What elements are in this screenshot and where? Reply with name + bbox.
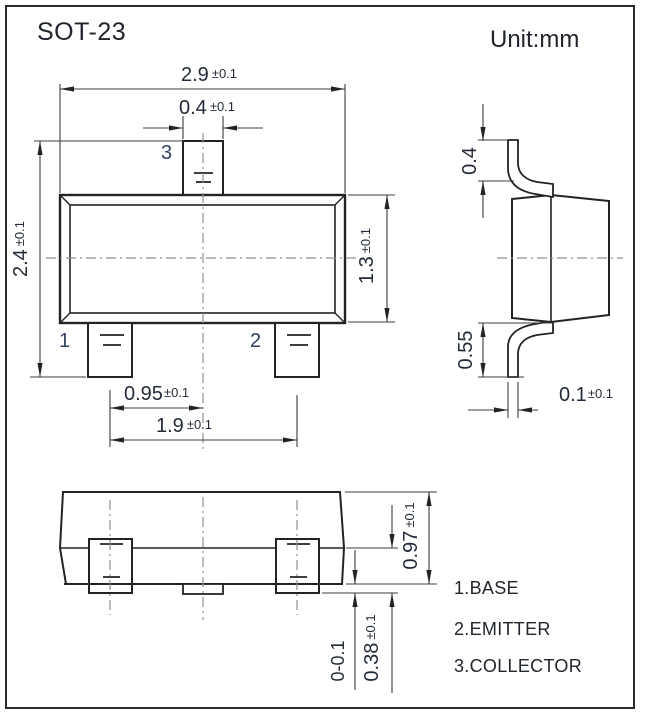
- dim-pin3-width: 0.4 ±0.1: [179, 98, 235, 118]
- bottom-lead-profile: [508, 321, 553, 377]
- legend-base: 1.BASE: [454, 578, 519, 599]
- dim-lead-tip-height: 0.4: [460, 141, 480, 181]
- legend-collector: 3.COLLECTOR: [454, 656, 582, 677]
- unit-label: Unit:mm: [490, 28, 579, 52]
- dim-standoff: 0-0.1: [328, 631, 348, 691]
- dim-body-width: 2.9 ±0.1: [181, 65, 237, 85]
- dim-front-body-height: 0.97 ±0.1: [401, 490, 421, 582]
- drawing-canvas: [0, 0, 645, 715]
- pin3-label: 3: [161, 143, 172, 163]
- dim-lead-thickness: 0.1 ±0.1: [559, 385, 613, 405]
- legend-emitter: 2.EMITTER: [454, 619, 551, 640]
- top-lead-profile: [508, 140, 553, 197]
- front-view: [60, 492, 344, 594]
- pin1-lead: [88, 323, 132, 377]
- pin1-label: 1: [59, 331, 70, 351]
- dim-lead-bend-height: 0.55: [456, 327, 476, 373]
- package-outline-drawing: SOT-23 Unit:mm 2.9 ±0.1 0.4 ±0.1 3 1 2 0…: [0, 0, 645, 715]
- dim-pin-span: 1.9 ±0.1: [156, 416, 212, 436]
- page-title: SOT-23: [37, 20, 126, 45]
- dim-body-height: 1.3 ±0.1: [356, 211, 378, 301]
- pin2-label: 2: [250, 331, 261, 351]
- dim-pin-pitch: 0.95 ±0.1: [124, 384, 189, 404]
- pin2-lead: [275, 323, 319, 377]
- dim-lead-foot-height: 0.38 ±0.1: [362, 602, 382, 694]
- dim-overall-height: 2.4 ±0.1: [10, 204, 32, 294]
